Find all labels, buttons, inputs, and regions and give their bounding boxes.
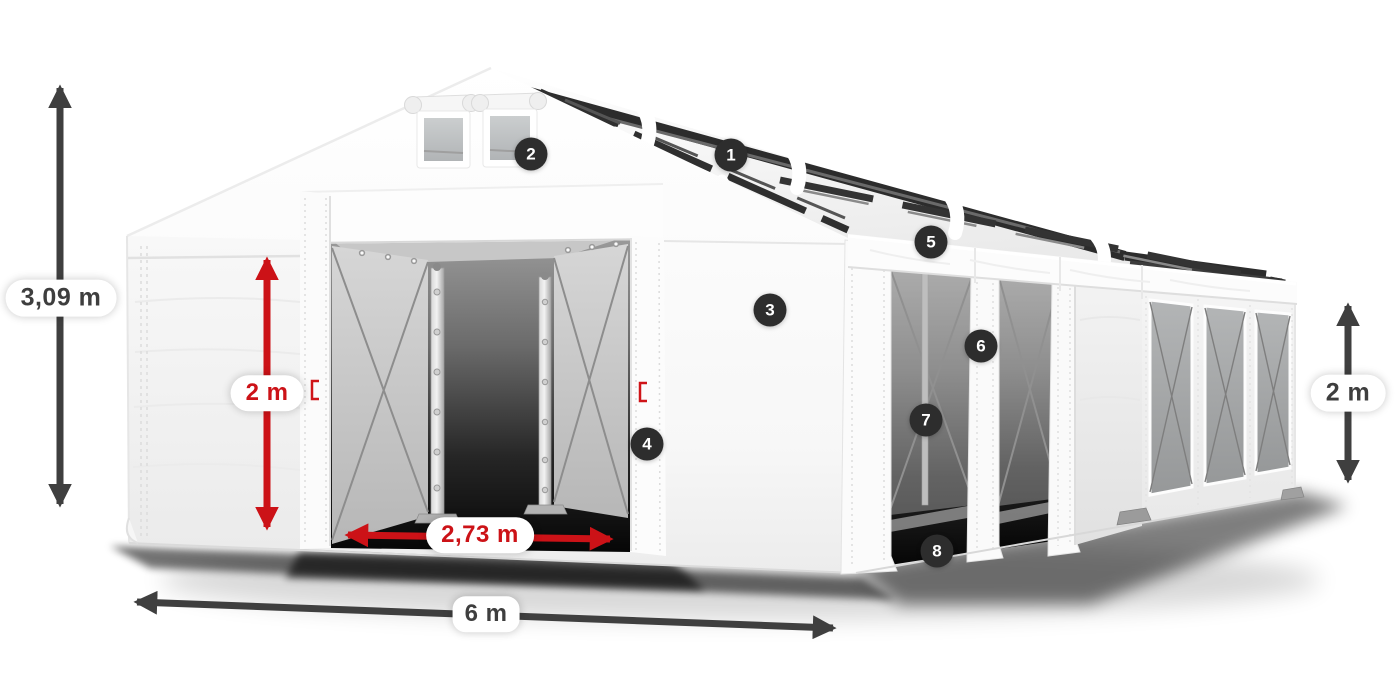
callout-2: 2	[515, 138, 548, 171]
side-window	[1256, 311, 1290, 474]
callout-8: 8	[921, 535, 954, 568]
callout-1: 1	[715, 139, 748, 172]
side-pillar	[967, 276, 1003, 562]
side-window	[1205, 306, 1245, 485]
side-pillar	[841, 240, 897, 574]
callout-4: 4	[631, 428, 664, 461]
side-window	[1150, 300, 1192, 495]
tent-illustration	[0, 0, 1400, 700]
tent-diagram: 3,09 m 2 m 2,73 m 6 m 2 m 1 2 3 4 5 6 7 …	[0, 0, 1400, 700]
entrance-door-column	[300, 191, 331, 549]
callout-6: 6	[965, 330, 998, 363]
callout-5: 5	[915, 226, 948, 259]
front-entrance	[300, 183, 666, 556]
callout-3: 3	[754, 294, 787, 327]
dimension-label-total-width: 6 m	[453, 596, 520, 632]
dimension-label-total-height: 3,09 m	[6, 280, 117, 317]
dimension-label-entrance-width: 2,73 m	[426, 517, 534, 553]
entrance-header	[302, 183, 663, 244]
dimension-label-side-height: 2 m	[1311, 375, 1386, 412]
dimension-label-entrance-height: 2 m	[231, 375, 304, 411]
callout-7: 7	[910, 404, 943, 437]
side-curtain	[1075, 266, 1142, 545]
